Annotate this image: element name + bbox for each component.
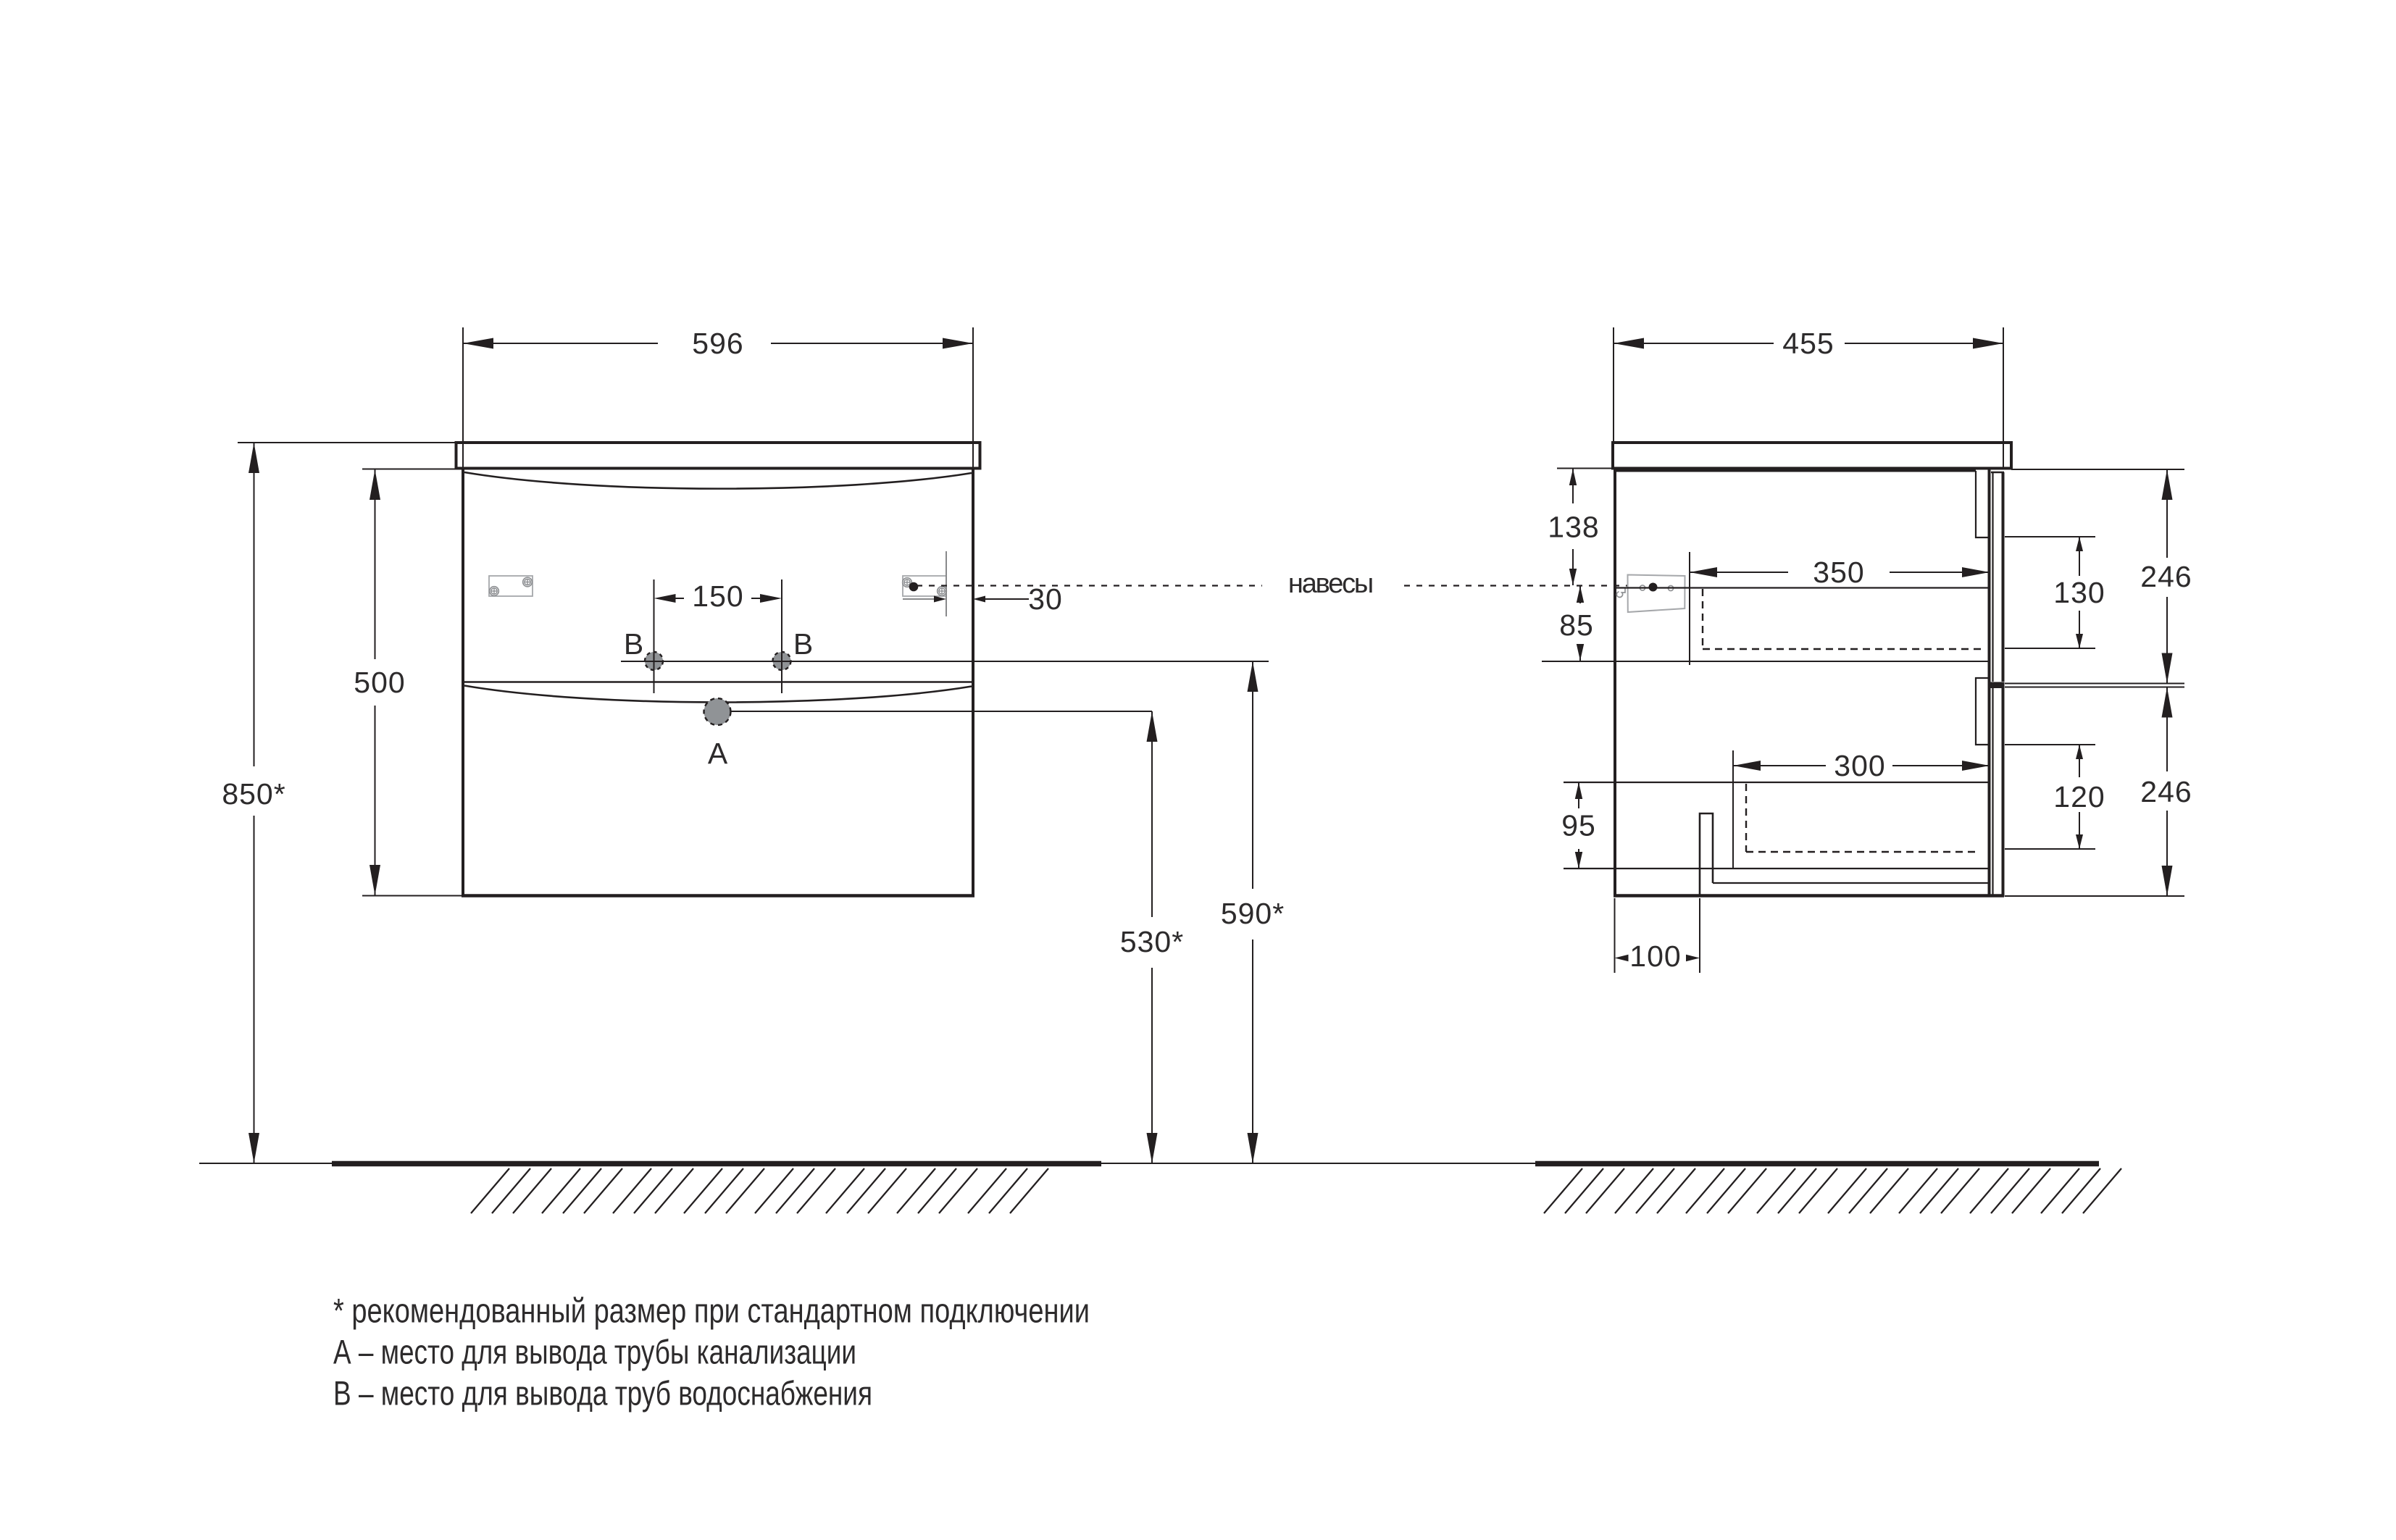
svg-text:596: 596 bbox=[692, 327, 743, 360]
svg-text:85: 85 bbox=[1559, 608, 1594, 642]
svg-text:850*: 850* bbox=[222, 777, 285, 811]
svg-text:350: 350 bbox=[1813, 556, 1864, 589]
svg-text:В – место для вывода труб водо: В – место для вывода труб водоснабжения bbox=[333, 1374, 872, 1413]
svg-text:95: 95 bbox=[1561, 809, 1596, 842]
svg-text:В: В bbox=[624, 627, 644, 661]
svg-text:навесы: навесы bbox=[1288, 569, 1372, 599]
svg-text:138: 138 bbox=[1548, 511, 1599, 544]
svg-text:120: 120 bbox=[2053, 780, 2105, 813]
svg-text:100: 100 bbox=[1629, 940, 1681, 973]
svg-text:30: 30 bbox=[1028, 582, 1063, 616]
svg-text:150: 150 bbox=[692, 579, 743, 613]
svg-text:А – место для вывода трубы кан: А – место для вывода трубы канализации bbox=[333, 1333, 856, 1371]
svg-text:455: 455 bbox=[1782, 327, 1834, 360]
svg-text:246: 246 bbox=[2140, 560, 2192, 593]
svg-text:530*: 530* bbox=[1120, 925, 1184, 958]
svg-text:300: 300 bbox=[1834, 749, 1885, 782]
svg-text:130: 130 bbox=[2053, 576, 2105, 609]
svg-text:В: В bbox=[793, 627, 814, 661]
svg-text:246: 246 bbox=[2140, 775, 2192, 808]
svg-text:500: 500 bbox=[354, 666, 405, 699]
svg-text:А: А bbox=[708, 737, 728, 770]
svg-text:590*: 590* bbox=[1221, 897, 1285, 930]
svg-text:* рекомендованный размер при с: * рекомендованный размер при стандартном… bbox=[333, 1292, 1090, 1330]
